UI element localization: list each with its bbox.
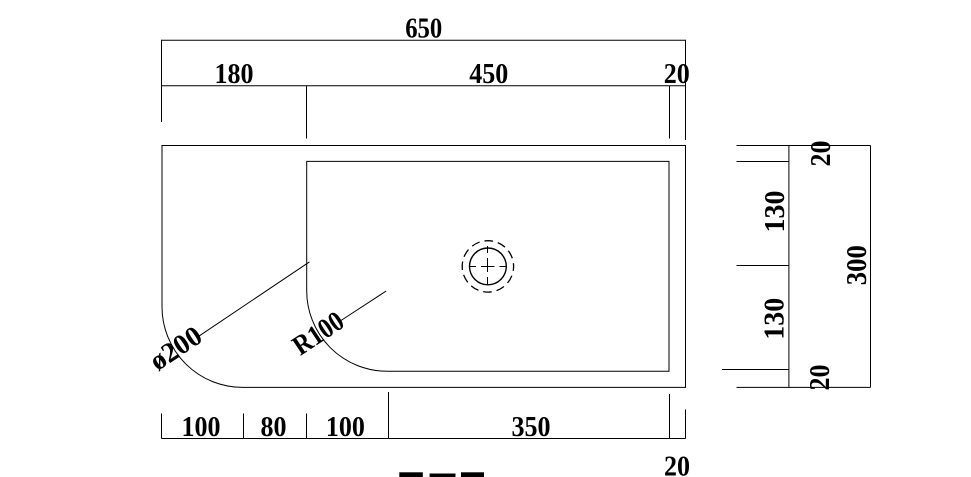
svg-text:20: 20 bbox=[806, 141, 837, 167]
svg-text:100: 100 bbox=[326, 412, 365, 443]
svg-text:20: 20 bbox=[664, 452, 690, 477]
svg-text:100: 100 bbox=[182, 412, 221, 443]
svg-text:450: 450 bbox=[469, 59, 508, 90]
svg-text:130: 130 bbox=[760, 298, 791, 340]
svg-text:80: 80 bbox=[261, 412, 287, 443]
svg-text:350: 350 bbox=[512, 412, 551, 443]
svg-text:130: 130 bbox=[760, 191, 791, 233]
svg-text:180: 180 bbox=[215, 59, 254, 90]
svg-text:20: 20 bbox=[805, 365, 836, 391]
svg-text:300: 300 bbox=[842, 245, 873, 285]
svg-text:650: 650 bbox=[405, 14, 442, 45]
svg-text:20: 20 bbox=[664, 59, 690, 90]
